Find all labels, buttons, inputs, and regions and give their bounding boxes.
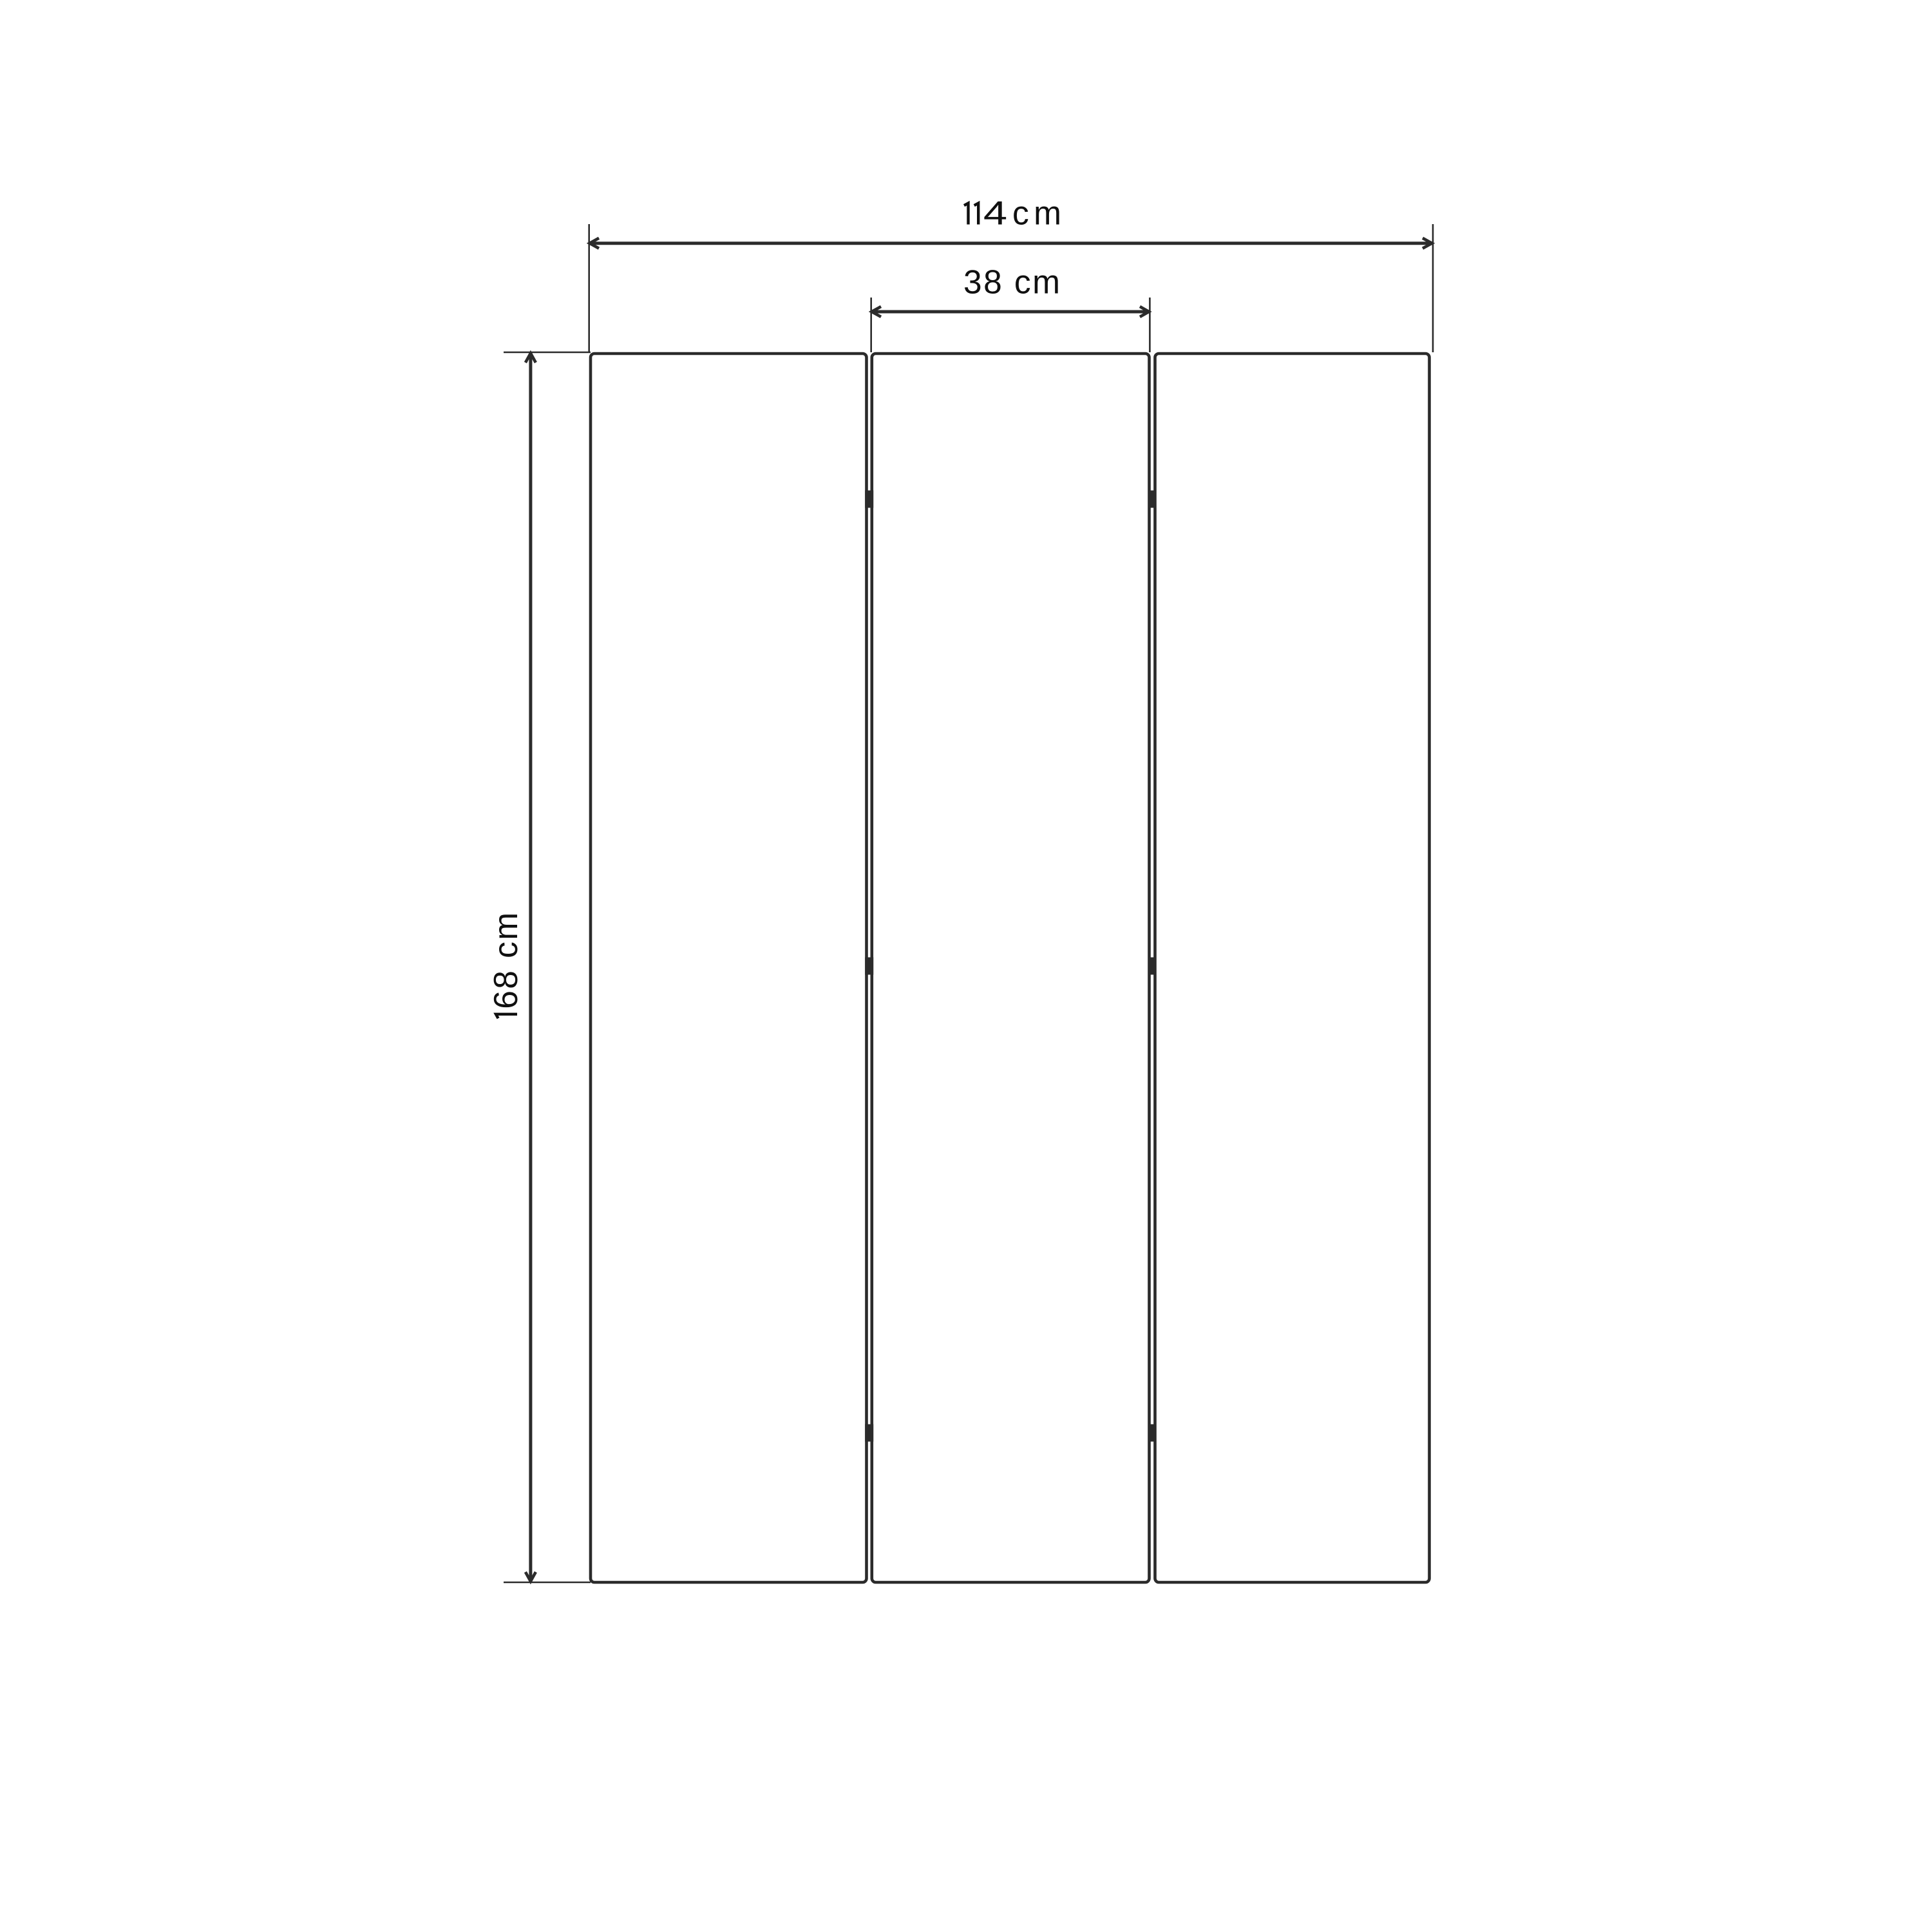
svg-text:68 cm: 68 cm bbox=[487, 913, 524, 1009]
svg-text:38 cm: 38 cm bbox=[963, 263, 1060, 301]
svg-text:cm: cm bbox=[1012, 194, 1061, 232]
svg-text:4: 4 bbox=[983, 194, 1007, 232]
